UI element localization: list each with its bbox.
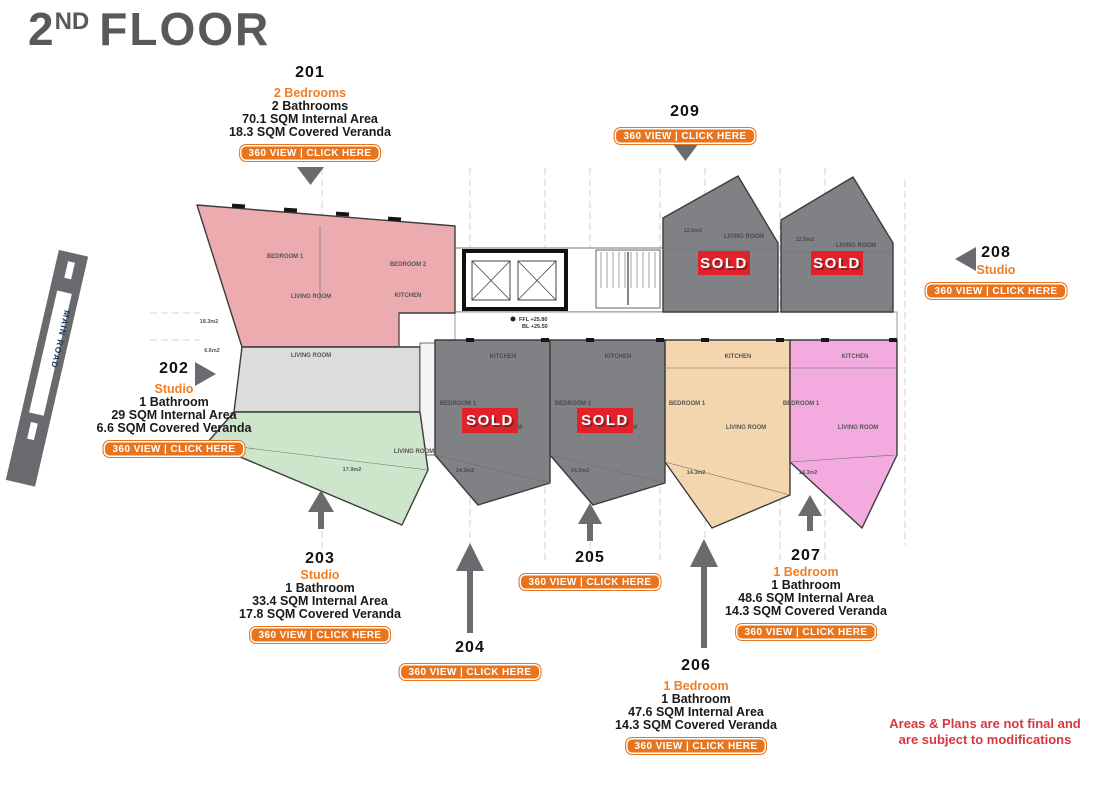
unit-201-number: 201 [229, 64, 391, 82]
room-label: BEDROOM 1 [555, 401, 592, 407]
unit-207-360-view-button[interactable]: 360 VIEW | CLICK HERE [735, 623, 878, 641]
room-label: LIVING ROOM [726, 425, 766, 431]
room-label: KITCHEN [395, 293, 422, 299]
room-label: BEDROOM 1 [267, 254, 304, 260]
room-label: LIVING ROOM [291, 353, 331, 359]
unit-203-number: 203 [239, 550, 401, 568]
unit-203-360-view-button[interactable]: 360 VIEW | CLICK HERE [249, 626, 392, 644]
area-label: 6.6m2 [204, 348, 220, 354]
room-label: BEDROOM 2 [390, 262, 427, 268]
unit-208-360-view-button[interactable]: 360 VIEW | CLICK HERE [925, 282, 1068, 300]
area-label: 14.3m2 [799, 470, 818, 476]
unit-204-360-view-button[interactable]: 360 VIEW | CLICK HERE [399, 663, 542, 681]
unit-206-360-view-button[interactable]: 360 VIEW | CLICK HERE [625, 737, 768, 755]
room-label: LIVING ROOM [838, 425, 878, 431]
room-label: KITCHEN [725, 354, 752, 360]
floor-ordinal: ND [55, 8, 90, 35]
area-label: 18.3m2 [200, 319, 219, 325]
unit-201-region[interactable] [197, 205, 455, 347]
floor-plan-page: MAIN ROAD [0, 0, 1117, 789]
unit-205-number: 205 [519, 549, 662, 567]
disclaimer-line-1: Areas & Plans are not final and [889, 716, 1080, 732]
area-label: 12.5m2 [796, 237, 815, 243]
unit-209-360-view-button[interactable]: 360 VIEW | CLICK HERE [614, 127, 757, 145]
unit-208-number: 208 [925, 244, 1068, 262]
unit-205-arrow [578, 503, 602, 541]
area-label: 14.3m2 [687, 470, 706, 476]
room-label: LIVING ROOM [724, 234, 764, 240]
unit-202-number: 202 [97, 360, 252, 378]
room-label: KITCHEN [605, 354, 632, 360]
unit-201-info: 201 2 Bedrooms 2 Bathrooms 70.1 SQM Inte… [229, 64, 391, 162]
page-title: 2NDFLOOR [28, 2, 270, 56]
unit-204-info: 204 360 VIEW | CLICK HERE [399, 639, 542, 681]
unit-201-veranda-area: 18.3 SQM Covered Veranda [229, 126, 391, 139]
level-marker-icon [511, 317, 516, 322]
area-label: 17.9m2 [343, 467, 362, 473]
unit-205-sold-badge: SOLD [577, 408, 633, 433]
unit-202-360-view-button[interactable]: 360 VIEW | CLICK HERE [103, 440, 246, 458]
floor-number: 2 [28, 3, 55, 55]
area-label: 12.5m2 [684, 228, 703, 234]
staircase [596, 250, 660, 308]
room-label: LIVING ROOM [394, 449, 434, 455]
room-label: LIVING ROOM [291, 294, 331, 300]
main-road-graphic: MAIN ROAD [6, 250, 88, 487]
unit-206-arrow [690, 539, 718, 648]
unit-205-360-view-button[interactable]: 360 VIEW | CLICK HERE [519, 573, 662, 591]
unit-201-arrow [297, 167, 324, 185]
unit-204-number: 204 [399, 639, 542, 657]
floor-word: FLOOR [99, 3, 270, 55]
room-label: BEDROOM 1 [783, 401, 820, 407]
unit-204-sold-badge: SOLD [462, 408, 518, 433]
unit-206-info: 206 1 Bedroom 1 Bathroom 47.6 SQM Intern… [615, 657, 777, 755]
unit-202-veranda-area: 6.6 SQM Covered Veranda [97, 422, 252, 435]
unit-204-arrow [456, 543, 484, 633]
unit-209-region [663, 176, 778, 312]
unit-206-veranda-area: 14.3 SQM Covered Veranda [615, 719, 777, 732]
unit-209-sold-badge: SOLD [698, 251, 750, 275]
unit-207-arrow [798, 495, 822, 531]
unit-208-type: Studio [925, 264, 1068, 277]
area-label: 14.3m2 [456, 468, 475, 474]
room-label: BEDROOM 1 [669, 401, 706, 407]
unit-209-arrow [672, 143, 699, 161]
unit-207-veranda-area: 14.3 SQM Covered Veranda [725, 605, 887, 618]
level-bl: BL +25.50 [522, 324, 548, 330]
unit-202-info: 202 Studio 1 Bathroom 29 SQM Internal Ar… [97, 360, 252, 458]
unit-209-number: 209 [614, 103, 757, 121]
unit-208-info: 208 Studio 360 VIEW | CLICK HERE [925, 244, 1068, 300]
unit-208-sold-badge: SOLD [811, 251, 863, 275]
unit-207-number: 207 [725, 547, 887, 565]
room-label: KITCHEN [842, 354, 869, 360]
unit-203-info: 203 Studio 1 Bathroom 33.4 SQM Internal … [239, 550, 401, 644]
room-label: KITCHEN [490, 354, 517, 360]
level-ffl: FFL +25.80 [519, 317, 547, 323]
room-label: LIVING ROOM [836, 243, 876, 249]
disclaimer-line-2: are subject to modifications [889, 732, 1080, 748]
unit-206-number: 206 [615, 657, 777, 675]
disclaimer-text: Areas & Plans are not final and are subj… [889, 716, 1080, 748]
unit-205-info: 205 360 VIEW | CLICK HERE [519, 549, 662, 591]
unit-209-info: 209 360 VIEW | CLICK HERE [614, 103, 757, 145]
unit-207-info: 207 1 Bedroom 1 Bathroom 48.6 SQM Intern… [725, 547, 887, 641]
unit-203-arrow [308, 490, 334, 529]
room-label: BEDROOM 1 [440, 401, 477, 407]
unit-201-360-view-button[interactable]: 360 VIEW | CLICK HERE [239, 144, 382, 162]
unit-203-veranda-area: 17.8 SQM Covered Veranda [239, 608, 401, 621]
area-label: 14.3m2 [571, 468, 590, 474]
